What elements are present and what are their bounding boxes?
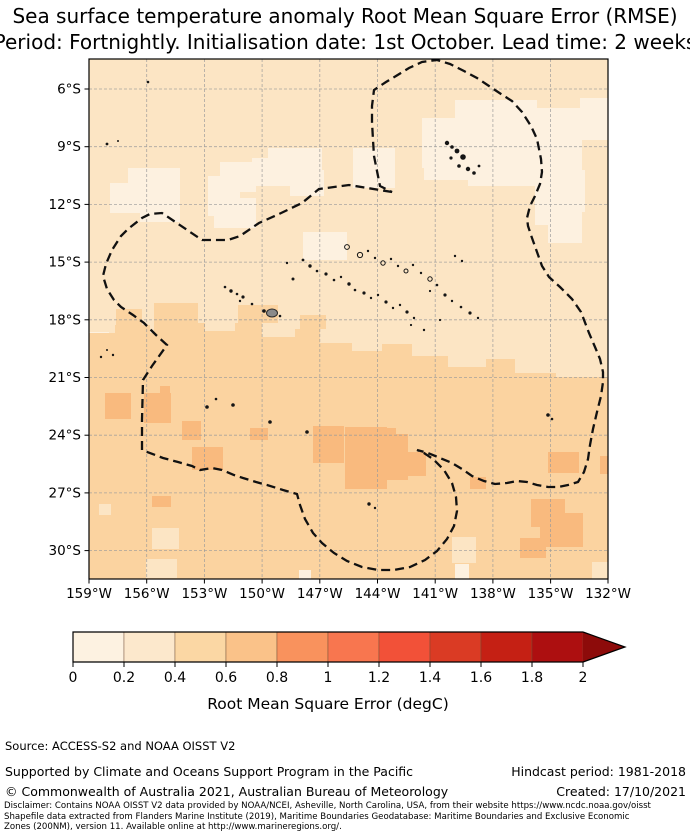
y-tick-label: 24°S xyxy=(49,428,82,444)
source-text: Source: ACCESS-S2 and NOAA OISST V2 xyxy=(5,739,235,753)
colorbar: 0 0.2 0.4 0.6 0.8 1 1.2 1.4 1.6 1.8 2 Ro… xyxy=(69,632,625,713)
x-tick-label: 144°W xyxy=(355,586,401,602)
x-tick-label: 141°W xyxy=(412,586,458,602)
colorbar-tick-label: 1.4 xyxy=(419,670,441,686)
colorbar-segment xyxy=(430,632,481,662)
colorbar-tick-label: 1.6 xyxy=(470,670,492,686)
disclaimer-line-2: Shapefile data extracted from Flanders M… xyxy=(4,812,651,823)
copyright-text: © Commonwealth of Australia 2021, Austra… xyxy=(5,784,448,799)
map-figure: 6°S 9°S 12°S 15°S 18°S 21°S 24°S 27°S 30… xyxy=(0,0,690,730)
x-tick-label: 153°W xyxy=(181,586,227,602)
y-tick-label: 9°S xyxy=(57,139,81,155)
x-tick-label: 156°W xyxy=(124,586,170,602)
tahiti-island xyxy=(267,309,278,317)
colorbar-tick-labels: 0 0.2 0.4 0.6 0.8 1 1.2 1.4 1.6 1.8 2 xyxy=(69,670,588,686)
hindcast-period-text: Hindcast period: 1981-2018 xyxy=(511,764,686,779)
y-axis-labels: 6°S 9°S 12°S 15°S 18°S 21°S 24°S 27°S 30… xyxy=(49,82,82,560)
figure-page: Sea surface temperature anomaly Root Mea… xyxy=(0,0,690,839)
x-axis-labels: 159°W 156°W 153°W 150°W 147°W 144°W 141°… xyxy=(66,586,631,602)
y-tick-label: 21°S xyxy=(49,370,82,386)
colorbar-tick-label: 2 xyxy=(579,670,588,686)
map-plot: 6°S 9°S 12°S 15°S 18°S 21°S 24°S 27°S 30… xyxy=(49,59,631,602)
colorbar-segment xyxy=(277,632,328,662)
colorbar-tick-label: 0.2 xyxy=(113,670,135,686)
y-tick-label: 12°S xyxy=(49,197,82,213)
x-tick-label: 159°W xyxy=(66,586,112,602)
colorbar-segment xyxy=(379,632,430,662)
colorbar-segments xyxy=(73,632,583,662)
x-tick-label: 150°W xyxy=(239,586,285,602)
created-date-text: Created: 17/10/2021 xyxy=(556,784,686,799)
colorbar-segment xyxy=(328,632,379,662)
colorbar-tick-label: 0.4 xyxy=(164,670,186,686)
colorbar-extend-arrow xyxy=(583,632,625,662)
supported-by-text: Supported by Climate and Oceans Support … xyxy=(5,764,413,779)
y-tick-label: 6°S xyxy=(57,82,81,98)
disclaimer-text: Disclaimer: Contains NOAA OISST V2 data … xyxy=(4,801,651,833)
colorbar-tick-label: 1.2 xyxy=(368,670,390,686)
colorbar-axis-label: Root Mean Square Error (degC) xyxy=(207,695,449,713)
colorbar-tick-label: 0.8 xyxy=(266,670,288,686)
colorbar-tick-label: 0 xyxy=(69,670,78,686)
x-tick-label: 147°W xyxy=(297,586,343,602)
colorbar-segment xyxy=(175,632,226,662)
x-tick-label: 138°W xyxy=(470,586,516,602)
colorbar-segment xyxy=(73,632,124,662)
colorbar-tick-label: 1.8 xyxy=(521,670,543,686)
y-tick-label: 15°S xyxy=(49,255,82,271)
y-tick-label: 18°S xyxy=(49,312,82,328)
colorbar-tick-label: 1 xyxy=(324,670,333,686)
colorbar-segment xyxy=(532,632,583,662)
y-tick-label: 27°S xyxy=(49,485,82,501)
y-tick-label: 30°S xyxy=(49,543,82,559)
x-tick-label: 132°W xyxy=(585,586,631,602)
colorbar-segment xyxy=(481,632,532,662)
disclaimer-line-3: Zones (200NM), version 11. Available onl… xyxy=(4,822,651,833)
disclaimer-line-1: Disclaimer: Contains NOAA OISST V2 data … xyxy=(4,801,651,812)
colorbar-ticks xyxy=(73,662,583,667)
colorbar-tick-label: 0.6 xyxy=(215,670,237,686)
x-tick-label: 135°W xyxy=(528,586,574,602)
colorbar-segment xyxy=(226,632,277,662)
colorbar-segment xyxy=(124,632,175,662)
